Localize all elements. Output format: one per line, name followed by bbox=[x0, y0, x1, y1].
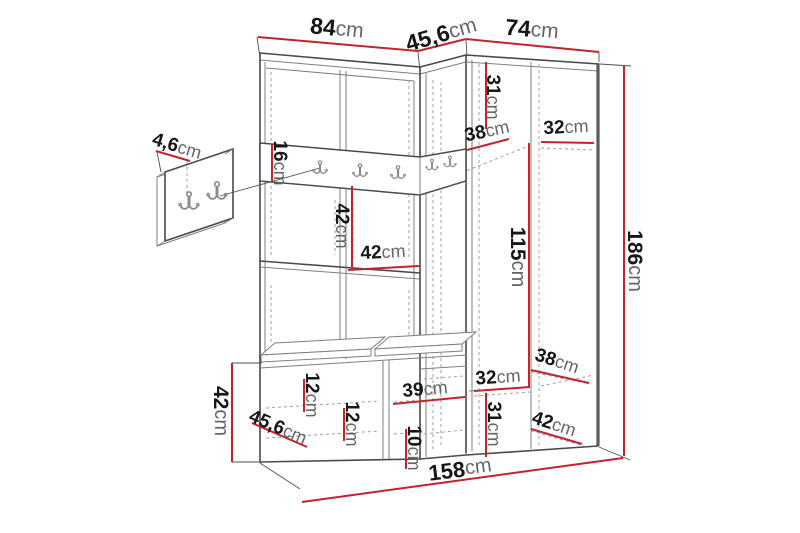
dimension-label-top-width-corner: 45,6cm bbox=[402, 11, 479, 56]
dimension-layer: 84cm45,6cm74cm31cm38cm32cm16cm4,6cm42cm4… bbox=[150, 11, 647, 502]
dimension-label-open-section-width: 42cm bbox=[360, 240, 406, 263]
dimension-label-upper-shelf-height: 31cm bbox=[483, 74, 504, 119]
dimension-label-lower-shelf-width: 32cm bbox=[475, 365, 521, 389]
dimension-label-wardrobe-inner-height: 115cm bbox=[507, 227, 530, 288]
dimension-label-upper-shelf-depth: 38cm bbox=[463, 116, 512, 146]
wall-hook-panel bbox=[157, 149, 233, 246]
dimension-label-upper-shelf-width: 32cm bbox=[543, 115, 589, 138]
dim-line-upper-shelf-width bbox=[541, 142, 594, 143]
dim-line-top-width-right bbox=[466, 39, 599, 52]
dimension-label-open-section-height: 42cm bbox=[332, 203, 353, 248]
dimension-label-shoe-gap-height: 10cm bbox=[404, 425, 425, 470]
furniture-dimension-diagram: 84cm45,6cm74cm31cm38cm32cm16cm4,6cm42cm4… bbox=[0, 0, 800, 533]
dimension-label-bench-depth: 45,6cm bbox=[246, 405, 310, 448]
dimension-label-bench-bay-width: 39cm bbox=[402, 377, 449, 402]
dimension-label-bench-top-height: 12cm bbox=[302, 372, 323, 417]
dimension-label-hook-rail-height: 16cm bbox=[270, 140, 291, 185]
dimension-label-bench-drawer-height: 12cm bbox=[342, 401, 363, 446]
dimension-label-top-width-left: 84cm bbox=[309, 12, 365, 43]
dimension-label-bench-height: 42cm bbox=[210, 386, 233, 436]
dimension-label-lower-bay-height: 31cm bbox=[484, 401, 505, 446]
dimension-label-top-width-right: 74cm bbox=[504, 14, 560, 45]
dimension-label-total-height: 186cm bbox=[624, 230, 647, 292]
